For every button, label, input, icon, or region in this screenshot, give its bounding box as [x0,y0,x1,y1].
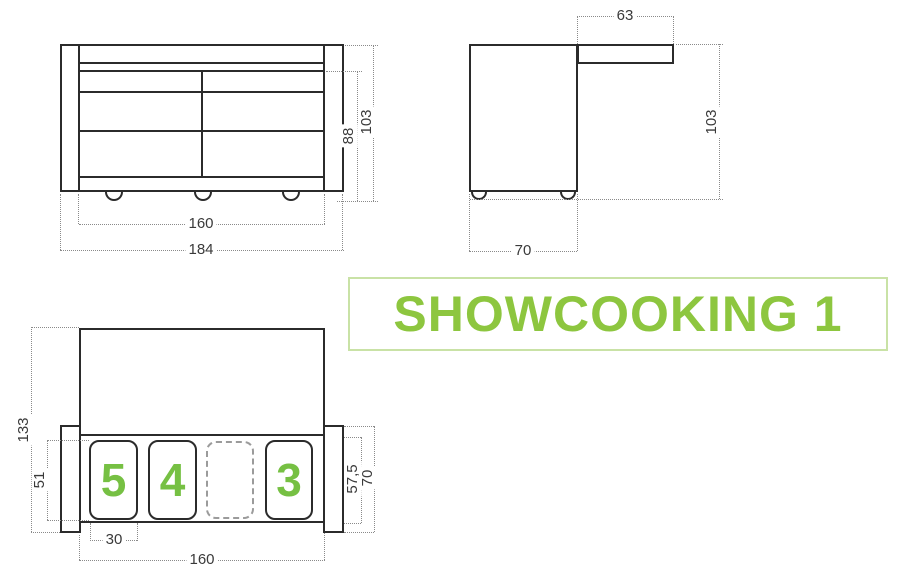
side-dim-depth: 70 [512,243,535,260]
plan-dim-total-depth: 133 [16,414,33,445]
page-title: SHOWCOOKING 1 [393,285,842,343]
title-box: SHOWCOOKING 1 [348,277,888,351]
dimension-line [31,327,79,328]
dimension-line [79,535,80,560]
front-dim-inner-width: 160 [185,216,216,233]
plan-right-panel [323,425,344,533]
dimension-line [324,533,325,560]
front-left-leg-line [78,44,80,192]
dimension-line [324,194,325,224]
dimension-line [676,44,723,45]
plan-bottom-line [79,521,325,523]
dimension-line [577,194,578,251]
dimension-line [47,520,89,521]
front-center-divider-line [201,70,203,176]
dimension-line [337,201,378,202]
dimension-line [137,523,138,541]
dimension-line [90,523,91,541]
module-number: 5 [101,453,127,507]
front-dim-outer-width: 184 [185,242,216,259]
plan-left-panel [60,425,81,533]
plan-module-5: 5 [89,440,138,520]
front-right-leg-line [323,44,325,192]
side-body-outline [469,44,578,192]
front-dim-outer-height: 103 [359,106,376,137]
plan-module-3: 3 [265,440,313,520]
plan-dim-opening-depth: 51 [32,469,49,492]
dimension-line [60,194,61,250]
front-top-band-line [78,62,325,64]
dimension-line [342,194,343,250]
dimension-line [326,71,362,72]
dimension-line [78,194,79,224]
plan-dim-module-width: 30 [103,532,126,549]
plan-dim-inner-width: 160 [186,552,217,569]
dimension-line [344,523,361,524]
dimension-line [344,437,361,438]
front-bottom-band-line [78,176,325,178]
front-wheel-center [194,192,212,201]
plan-counter-outline [79,328,325,436]
side-shelf-outline [577,44,674,64]
dimension-line [469,194,470,251]
dimension-line [470,199,723,200]
module-number: 4 [160,453,186,507]
dimension-line [47,440,89,441]
dimension-line [345,45,378,46]
plan-dim-body-depth: 70 [360,467,377,490]
dimension-line [577,16,578,44]
module-number: 3 [276,453,302,507]
technical-drawing-canvas: 88 103 160 184 63 103 70 5 4 [0,0,900,575]
dimension-line [344,532,374,533]
dimension-line [31,532,60,533]
dimension-line [673,16,674,44]
plan-module-empty [206,441,254,519]
front-dim-inner-height: 88 [341,125,358,148]
side-dim-shelf-depth: 63 [614,8,637,25]
front-wheel-left [105,192,123,201]
front-wheel-right [282,192,300,201]
plan-module-4: 4 [148,440,197,520]
dimension-line [344,426,374,427]
side-dim-height: 103 [704,106,721,137]
